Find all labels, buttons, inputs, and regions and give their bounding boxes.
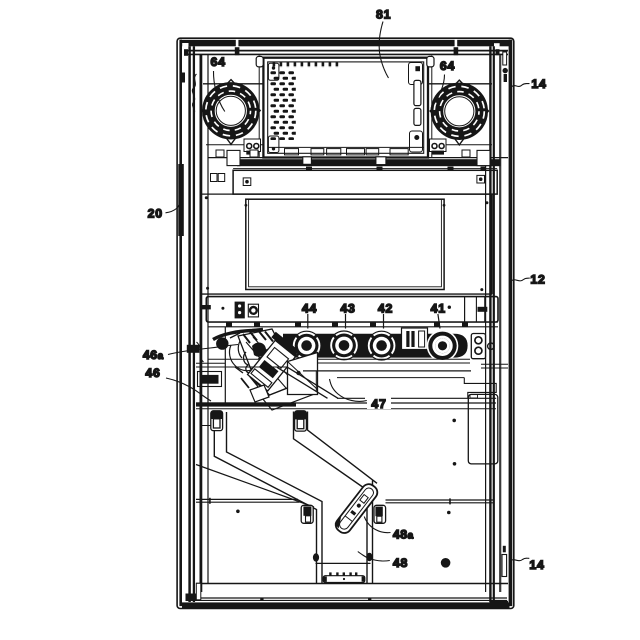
svg-text:14: 14 (529, 558, 544, 572)
svg-text:20: 20 (148, 207, 163, 221)
svg-text:64: 64 (440, 59, 455, 73)
svg-text:48: 48 (393, 556, 408, 570)
svg-text:46a: 46a (143, 348, 164, 362)
svg-text:43: 43 (340, 301, 355, 315)
svg-text:42: 42 (378, 301, 393, 315)
svg-text:44: 44 (302, 301, 317, 315)
svg-text:41: 41 (431, 301, 446, 315)
svg-text:48a: 48a (393, 528, 414, 542)
svg-text:64: 64 (211, 55, 226, 69)
svg-text:14: 14 (531, 77, 546, 91)
svg-text:81: 81 (376, 7, 391, 21)
svg-text:46: 46 (145, 366, 160, 380)
svg-text:12: 12 (530, 273, 545, 287)
svg-text:47: 47 (371, 397, 386, 411)
